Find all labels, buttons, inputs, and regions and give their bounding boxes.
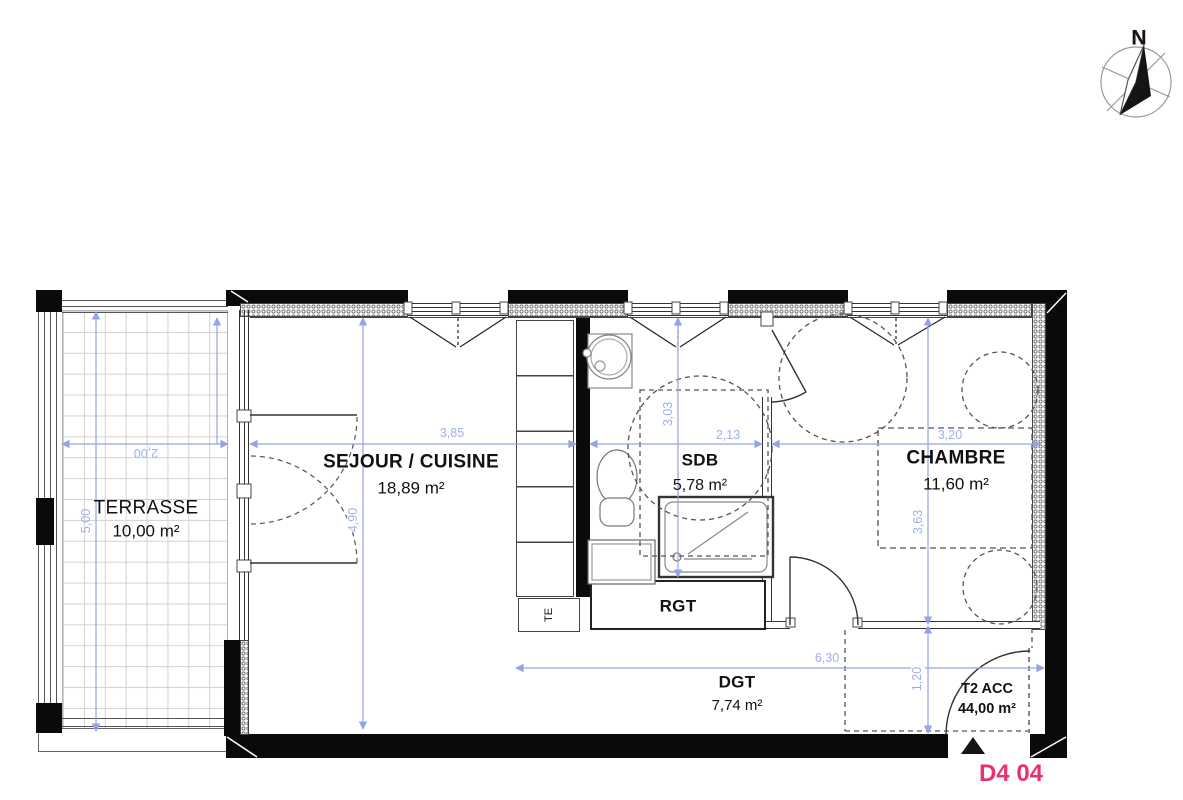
- dim-entry-depth: 1,20: [911, 667, 925, 691]
- dim-terrasse-width: 2,00: [134, 445, 158, 459]
- entrance-marker: [961, 737, 985, 754]
- dim-sdb-width: 2,13: [716, 429, 740, 443]
- compass-north-label: N: [1131, 26, 1146, 49]
- dim-sdb-depth: 3,03: [662, 402, 676, 426]
- sdb-door: [772, 330, 806, 402]
- room-label-dgt: DGT: [719, 674, 756, 693]
- room-label-rgt: RGT: [660, 598, 697, 617]
- terrace-door-swing: [250, 415, 357, 563]
- shower-tray: [659, 497, 773, 577]
- electrical-panel-label: TE: [543, 608, 555, 622]
- room-area-chambre: 11,60 m²: [923, 476, 989, 495]
- dim-sejour-width: 3,85: [440, 427, 464, 441]
- compass-icon: [1101, 45, 1171, 117]
- bathroom-cabinet: [588, 540, 655, 584]
- room-label-chambre: CHAMBRE: [906, 449, 1005, 470]
- room-area-dgt: 7,74 m²: [712, 698, 763, 715]
- dim-terrasse-depth: 5,00: [80, 509, 94, 533]
- room-label-sejour-cuisine: SEJOUR / CUISINE: [323, 453, 499, 474]
- washbasin: [583, 334, 632, 388]
- plan-graphics: [0, 0, 1183, 800]
- room-area-terrasse: 10,00 m²: [112, 523, 179, 542]
- room-area-sdb: 5,78 m²: [673, 477, 727, 495]
- dim-dgt-width: 6,30: [815, 652, 839, 666]
- unit-total-area: 44,00 m²: [958, 702, 1016, 718]
- unit-type-label: T2 ACC: [961, 682, 1013, 698]
- room-area-sejour-cuisine: 18,89 m²: [377, 480, 444, 499]
- toilet: [597, 450, 637, 526]
- dim-sejour-depth: 4,90: [347, 508, 361, 532]
- unit-number: D4 04: [979, 761, 1043, 787]
- dimension-lines: [62, 312, 1044, 733]
- dim-chambre-width: 3,20: [938, 429, 962, 443]
- chambre-door: [790, 557, 858, 625]
- room-label-terrasse: TERRASSE: [94, 499, 199, 520]
- room-label-sdb: SDB: [682, 452, 719, 471]
- floor-plan: TERRASSE 10,00 m² SEJOUR / CUISINE 18,89…: [0, 0, 1183, 800]
- dim-chambre-depth: 3,63: [912, 510, 926, 534]
